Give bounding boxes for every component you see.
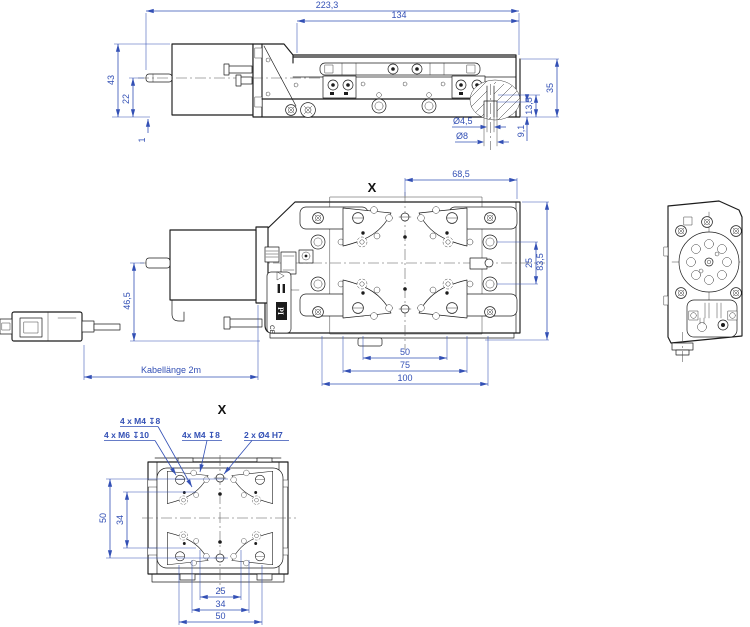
dim-body-width: 83,5 (535, 253, 545, 271)
ce-mark: CE (268, 325, 275, 335)
dim-h25: 25 (215, 586, 225, 596)
dim-hole-offset: 68,5 (452, 169, 470, 179)
dim-counterbore-depth: 9,1 (516, 125, 526, 138)
dim-total-length: 223,3 (316, 0, 339, 10)
plan-view-geometry: PI CE X (140, 180, 545, 350)
cable-hook (172, 300, 184, 321)
bottom-section-label: X (218, 402, 227, 417)
dim-hole-large: Ø8 (456, 131, 468, 141)
callout-m4-mid: 4x M4 ↧8 (182, 430, 220, 440)
motor-body-plan (170, 230, 256, 300)
callout-m4-top: 4 x M4 ↧8 (120, 416, 160, 426)
pi-logo: PI (276, 307, 285, 315)
dim-platform-length: 134 (391, 10, 406, 20)
dim-counterbore-pos: 13,5 (524, 97, 534, 115)
dim-h34: 34 (215, 599, 225, 609)
dim-stage-height: 35 (545, 83, 555, 93)
bottom-view: X 4 x M4 ↧8 4 x M6 ↧10 4x M4 ↧8 2 x Ø4 H… (98, 402, 296, 625)
bracket-diagonal (264, 46, 296, 106)
dim-hole-small: Ø4,5 (453, 116, 473, 126)
dim-holes-100: 100 (397, 373, 412, 383)
cable-connector (0, 312, 120, 341)
dim-motor-offset: 46,5 (122, 292, 132, 310)
dim-v50: 50 (98, 513, 108, 523)
dim-v34: 34 (115, 515, 125, 525)
dim-axis-height: 22 (121, 94, 131, 104)
limit-stub (470, 258, 487, 269)
cable (94, 324, 120, 330)
technical-drawing: 223,3 134 43 22 1 35 13,5 9,1 Ø4,5 Ø8 (0, 0, 750, 627)
side-view-geometry (138, 44, 520, 117)
bracket-top (262, 44, 293, 55)
label-plate: PI CE (267, 272, 291, 335)
plan-section-label: X (368, 180, 377, 195)
stage-foot (358, 338, 382, 346)
side-view: 223,3 134 43 22 1 35 13,5 9,1 Ø4,5 Ø8 (106, 0, 559, 150)
motor-endcap-plan (256, 227, 268, 303)
plan-view: PI CE X (0, 169, 549, 386)
dim-motor-height: 43 (106, 75, 116, 85)
motor-shaft-plan (146, 258, 170, 268)
dim-h50: 50 (215, 611, 225, 621)
dim-cable: Kabellänge 2m (141, 365, 201, 375)
callout-fit: 2 x Ø4 H7 (244, 430, 283, 440)
end-view (664, 201, 742, 364)
cable-ferrule (82, 321, 94, 332)
callout-m6: 4 x M6 ↧10 (104, 430, 149, 440)
end-bottom-plate (687, 300, 737, 337)
drawing-canvas: 223,3 134 43 22 1 35 13,5 9,1 Ø4,5 Ø8 (0, 0, 750, 627)
platform-top (293, 55, 516, 63)
dim-row-spacing: 25 (524, 258, 534, 268)
dim-base-gap: 1 (137, 137, 147, 142)
dim-holes-75: 75 (400, 360, 410, 370)
dim-holes-50: 50 (400, 347, 410, 357)
platform-rail (320, 63, 480, 75)
